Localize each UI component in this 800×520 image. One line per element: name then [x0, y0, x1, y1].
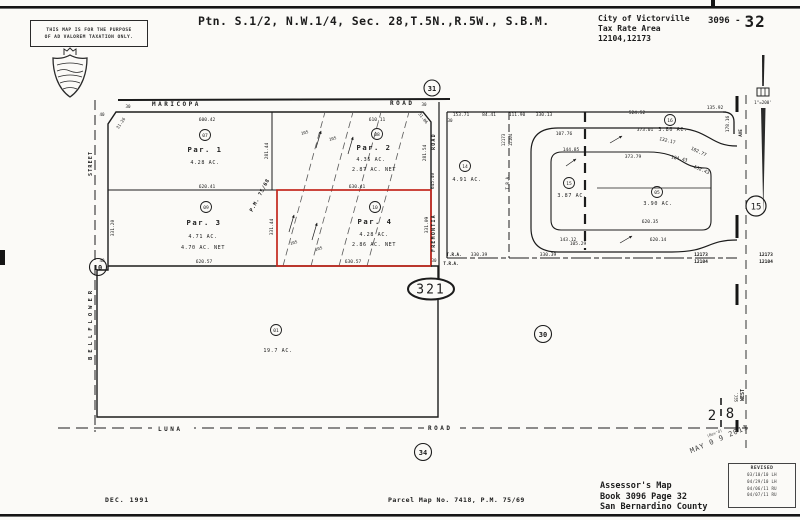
- dim-label: 31.06: [417, 112, 429, 125]
- dim-label: 178.16: [725, 115, 731, 132]
- road-label-road: ROAD: [390, 100, 414, 107]
- parcel-name: Par. 2: [357, 143, 392, 152]
- city-name: City of Victorville: [598, 14, 690, 24]
- svg-text:321: 321: [416, 283, 445, 298]
- tra-label: T.R.A.: [446, 252, 461, 257]
- revised-entry: 04/06/11 RU: [729, 486, 795, 493]
- page-reference-circles: 31 10 34 30 15: [90, 80, 767, 461]
- parcel-map-canvas: MARICOPA ROAD 30 30 STREET BELLFLOWER 40…: [0, 0, 800, 520]
- section-annotations: 2 8 WEST SEC. (Rev'd) MAY 0 9 2011: [687, 389, 750, 455]
- dim-label: 524.52: [629, 110, 646, 116]
- section-numeral: 2: [708, 408, 716, 424]
- dim-label: 645.40: [430, 172, 436, 189]
- dim-label: 105: [328, 135, 337, 142]
- dim-label: 30: [421, 102, 427, 107]
- dim-label: 105: [289, 239, 298, 246]
- dim-label: 373.01: [637, 127, 654, 133]
- disclaimer-line2: OF AD VALOREM TAXATION ONLY.: [31, 34, 147, 41]
- section-sec-label: SEC.: [734, 392, 739, 402]
- parcel-area: 4.71 AC.: [188, 234, 217, 240]
- parcel-block-east: 12173 12104 T.R.A.: [447, 112, 737, 258]
- county-seal: [50, 46, 90, 100]
- dim-label: 105: [314, 245, 323, 252]
- dim-label: 630.57: [345, 259, 362, 265]
- dim-label: 135.92: [707, 105, 724, 111]
- svg-text:10: 10: [372, 205, 378, 211]
- road-label-fremontia: FREMONTIA: [431, 214, 437, 252]
- svg-text:01: 01: [273, 328, 279, 334]
- dim-label: 30: [125, 104, 131, 109]
- highlighted-parcel-outline: [277, 190, 431, 266]
- tra-number: 12173: [759, 252, 773, 258]
- parcel-area-net: 2.87 AC. NET: [352, 167, 396, 173]
- road-label-ave: AVE: [738, 129, 743, 137]
- svg-text:16: 16: [667, 118, 673, 124]
- parcel-area: 19.7 AC.: [263, 348, 292, 354]
- dim-label: 330.39: [471, 252, 488, 258]
- svg-text:31: 31: [428, 85, 436, 93]
- revised-entry: 04/07/11 RU: [729, 492, 795, 499]
- dim-label: 153.71: [453, 112, 470, 118]
- dim-label: 600.42: [199, 117, 216, 123]
- parcel-area: 4.91 AC.: [452, 177, 481, 183]
- revised-title: REVISED: [729, 466, 795, 471]
- dim-label: 31.26: [115, 116, 126, 130]
- dim-label: 107.76: [556, 131, 573, 137]
- dim-label: 331.44: [269, 218, 275, 235]
- maricopa-road: MARICOPA ROAD 30 30: [118, 99, 450, 109]
- parcel-area: 4.28 AC.: [359, 232, 388, 238]
- tax-rate-area-values: 12104,12173: [598, 34, 690, 44]
- dim-label: 630.41: [349, 184, 366, 190]
- svg-text:34: 34: [419, 449, 427, 457]
- parcel-area-net: 2.86 AC. NET: [352, 242, 396, 248]
- city-tax-block: City of Victorville Tax Rate Area 12104,…: [598, 14, 690, 44]
- dim-label: 330.13: [536, 112, 553, 118]
- dim-label: 281.54: [422, 144, 428, 161]
- svg-text:05: 05: [654, 190, 660, 196]
- dim-label: 620.14: [650, 237, 667, 243]
- highway-marker-321: 321: [408, 279, 454, 300]
- revised-entry: 03/10/10 LH: [729, 472, 795, 479]
- page-number: 32: [745, 12, 766, 31]
- dim-label: 102.77: [690, 146, 708, 159]
- revised-box: REVISED 03/10/10 LH 04/29/10 LH 04/06/11…: [728, 463, 796, 508]
- parcel-area: 3.90 AC.: [643, 201, 672, 207]
- dim-label: 30: [447, 118, 453, 123]
- tax-rate-area-label: Tax Rate Area: [598, 24, 690, 34]
- parcel-area: 4.35 AC.: [356, 157, 385, 163]
- assessor-line1: Assessor's Map: [600, 481, 707, 492]
- svg-text:14: 14: [462, 164, 468, 170]
- svg-text:09: 09: [203, 205, 209, 211]
- road-label-road: ROAD: [428, 425, 452, 432]
- tra-number: 12173: [694, 252, 708, 258]
- dim-label: 620.57: [196, 259, 213, 265]
- disclaimer-box: THIS MAP IS FOR THE PURPOSE OF AD VALORE…: [30, 20, 148, 47]
- parcel-name: Par. 1: [188, 145, 223, 154]
- dim-label: 111.90: [509, 112, 526, 118]
- assessor-block: Assessor's Map Book 3096 Page 32 San Ber…: [600, 481, 707, 513]
- tra-number: 12104: [508, 133, 513, 146]
- pm-reference-label: P.M. 75/68: [249, 178, 272, 213]
- dim-label: 610.11: [369, 117, 386, 123]
- revised-entry: 04/29/10 LH: [729, 479, 795, 486]
- parcel-name: Par. 4: [358, 217, 393, 226]
- road-label-maricopa: MARICOPA: [152, 101, 201, 108]
- assessor-line3: San Bernardino County: [600, 502, 707, 513]
- parcel-map-reference: Parcel Map No. 7418, P.M. 75/69: [388, 496, 525, 504]
- map-date: DEC. 1991: [105, 496, 149, 504]
- svg-text:15: 15: [566, 181, 572, 187]
- dim-label: 331.20: [110, 219, 116, 236]
- svg-text:07: 07: [202, 133, 208, 139]
- dim-label: 620.41: [199, 184, 216, 190]
- dim-label: 620.35: [642, 219, 659, 225]
- svg-text:08: 08: [374, 132, 380, 138]
- parcel-area-net: 4.70 AC. NET: [181, 245, 225, 251]
- parcel-area: 3.80 AC.: [658, 127, 687, 133]
- dim-label: 124.43: [670, 154, 688, 163]
- dim-label: 132.17: [658, 136, 676, 146]
- parcel-block-south: LUNA ROAD: [58, 266, 748, 433]
- parcel-name: Par. 3: [187, 218, 222, 227]
- parcel-area: 4.28 AC.: [190, 160, 219, 166]
- section-west-label: WEST: [740, 389, 746, 401]
- dim-label: 281.44: [264, 142, 270, 159]
- road-label-road: ROAD: [431, 133, 437, 150]
- dim-label: 144.85: [563, 147, 580, 153]
- dim-label: 331.09: [424, 216, 430, 233]
- scale-note: 1"=200': [754, 100, 772, 105]
- road-label-luna: LUNA: [158, 426, 182, 433]
- parcel-area: 3.87 AC.: [557, 193, 586, 199]
- road-label-bellflower: BELLFLOWER: [88, 287, 94, 360]
- tra-label: T.R.A.: [443, 261, 458, 266]
- dim-label: 30: [431, 258, 437, 263]
- dim-label: 84.41: [482, 112, 496, 118]
- book-page-number: 3096 - 32: [708, 12, 766, 31]
- revision-stamp: (Rev'd) MAY 0 9 2011: [687, 418, 750, 455]
- svg-text:10: 10: [94, 264, 102, 272]
- book-number: 3096 -: [708, 16, 741, 26]
- map-title: Ptn. S.1/2, N.W.1/4, Sec. 28,T.5N.,R.5W.…: [198, 14, 550, 28]
- assessor-map-page: MARICOPA ROAD 30 30 STREET BELLFLOWER 40…: [0, 0, 800, 520]
- dim-label: 40: [99, 112, 105, 117]
- road-label-street: STREET: [88, 151, 94, 176]
- tra-number: 12173: [501, 133, 506, 146]
- svg-text:30: 30: [539, 331, 547, 339]
- tra-label: T.R.A.: [505, 174, 510, 189]
- dim-label: 105.29: [570, 241, 587, 247]
- dim-label: 373.79: [625, 154, 642, 160]
- svg-text:15: 15: [751, 203, 762, 213]
- assessor-line2: Book 3096 Page 32: [600, 492, 707, 503]
- section-numeral: 8: [726, 406, 734, 422]
- dim-label: 105: [300, 129, 309, 136]
- tra-number: 12104: [694, 259, 708, 265]
- tra-number: 12104: [759, 259, 773, 265]
- dim-label: 330.39: [540, 252, 557, 258]
- north-arrow: 1"=200': [754, 55, 772, 213]
- dim-label: 132.43: [693, 164, 711, 176]
- disclaimer-line1: THIS MAP IS FOR THE PURPOSE: [31, 27, 147, 34]
